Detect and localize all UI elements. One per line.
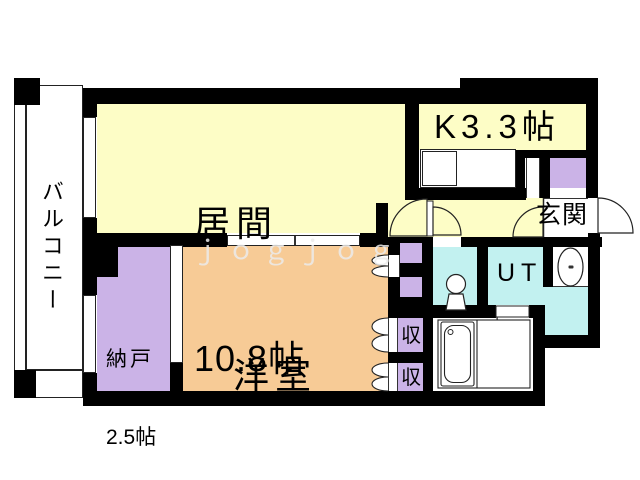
label-ut: UT [497, 261, 542, 286]
closet [400, 277, 422, 297]
wall [543, 247, 553, 287]
door-opening [526, 158, 540, 198]
wall [460, 78, 598, 104]
wall [405, 188, 526, 200]
closet-track [388, 318, 398, 352]
kitchen-sink [422, 151, 457, 186]
balcony-pillar [14, 370, 36, 398]
room-washroom [433, 243, 477, 310]
label-balcony: バルコニー [40, 180, 62, 330]
genkan-step [550, 188, 586, 198]
floor-plan: 居間 10.8帖 K3.3帖 玄関 UT 洋室 7帖 納戸 2.5帖 収 収 バ… [0, 0, 640, 480]
entrance-door-arc [598, 198, 633, 233]
wall [533, 315, 545, 406]
label-kitchen: K3.3帖 [434, 110, 560, 143]
label-closet-1: 収 [399, 326, 423, 346]
label-western-name: 洋室 [180, 354, 370, 397]
label-western: 洋室 7帖 [180, 268, 370, 480]
label-genkan: 玄関 [536, 203, 588, 228]
window [83, 117, 96, 218]
balcony-rail-line [25, 85, 27, 398]
room-toilet [553, 247, 588, 287]
label-nando: 納戸 2.5帖 [106, 295, 156, 480]
wall [586, 100, 598, 198]
wall [97, 247, 118, 277]
closet-track [388, 363, 398, 391]
label-closet-2: 収 [399, 368, 423, 388]
door-leaf [496, 306, 529, 317]
balcony-pillar [14, 78, 40, 105]
wall [388, 277, 400, 297]
wall [516, 158, 525, 188]
wall [516, 150, 586, 158]
wall [400, 263, 422, 277]
shoe-closet [550, 158, 586, 188]
wall [477, 243, 488, 310]
door-opening [433, 237, 461, 247]
label-nando-size: 2.5帖 [106, 425, 156, 451]
wall [405, 100, 419, 188]
wall [540, 158, 550, 198]
room-bathroom [421, 318, 533, 391]
wall [388, 352, 423, 363]
wall [588, 233, 600, 348]
wall [83, 88, 97, 117]
room-hallway [388, 198, 543, 237]
window [83, 295, 96, 373]
watermark: ｊｏｇｊｏｇ [193, 230, 403, 267]
wall [83, 218, 97, 295]
closet [400, 243, 422, 263]
label-nando-name: 納戸 [106, 347, 156, 373]
wall [529, 305, 545, 318]
